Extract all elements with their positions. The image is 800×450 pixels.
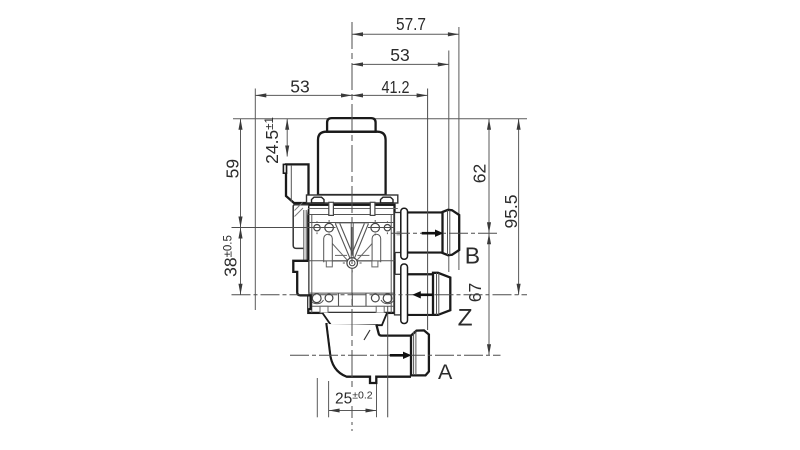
svg-text:B: B [465, 242, 480, 268]
svg-text:67: 67 [465, 283, 485, 302]
svg-text:41.2: 41.2 [382, 77, 410, 97]
svg-text:95.5: 95.5 [501, 194, 521, 228]
svg-text:57.7: 57.7 [396, 14, 426, 34]
svg-text:53: 53 [290, 76, 309, 96]
svg-text:62: 62 [469, 164, 489, 183]
svg-text:59: 59 [222, 159, 242, 178]
svg-text:Z: Z [458, 305, 473, 332]
svg-text:A: A [438, 360, 453, 384]
svg-text:53: 53 [390, 45, 409, 65]
